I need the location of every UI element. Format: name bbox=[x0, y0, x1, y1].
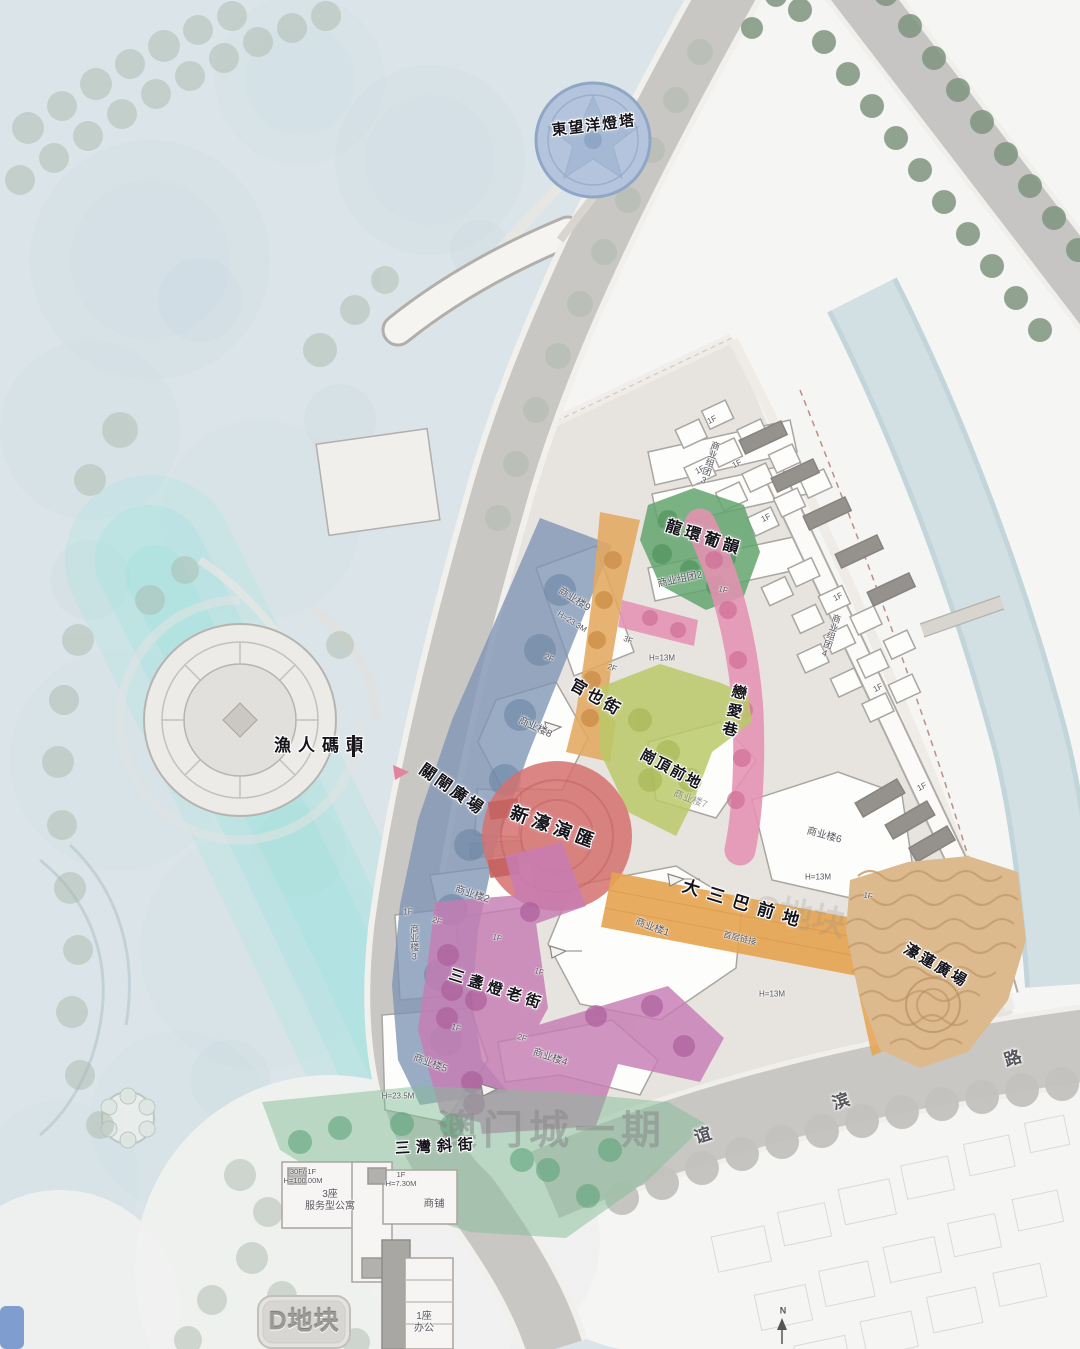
label-building-3: 商业楼3 bbox=[409, 925, 420, 962]
floor-label: 1F bbox=[533, 966, 544, 978]
label-d-plot: D地块 bbox=[268, 1307, 339, 1337]
label-guia-lighthouse: 東望洋燈塔 bbox=[551, 112, 638, 140]
labels-layer: C地块 澳门城一期 東望洋燈塔 漁人碼頭 關閘廣場 新濠演匯 官也街 龍環葡韻 … bbox=[0, 0, 1080, 1349]
label-building-8: 商业楼8 bbox=[516, 715, 553, 741]
label-building-7: 商业楼7 bbox=[671, 788, 708, 811]
floor-label: 1F bbox=[450, 1022, 462, 1034]
floor-label: 1F bbox=[403, 907, 412, 916]
label-building-6: 商业楼6 bbox=[805, 826, 842, 847]
label-border-gate: 關閘廣場 bbox=[415, 760, 488, 819]
site-plan-map: C地块 澳门城一期 東望洋燈塔 漁人碼頭 關閘廣場 新濠演匯 官也街 龍環葡韻 … bbox=[0, 0, 1080, 1349]
label-building-4: 商业楼4 bbox=[531, 1047, 568, 1069]
height-label: H=23.5M bbox=[382, 1091, 415, 1100]
compass-n-label: N bbox=[780, 1306, 787, 1317]
floor-label: 3F bbox=[622, 634, 634, 646]
floor-label: 2F bbox=[431, 915, 443, 927]
label-cluster-3: 商业组团3 bbox=[697, 439, 721, 486]
height-label: H=23.3M bbox=[556, 609, 589, 634]
height-label: H=13M bbox=[759, 989, 785, 998]
label-tower-1: 1座 办公 bbox=[414, 1311, 434, 1335]
label-building-9: 商业楼9 bbox=[556, 586, 592, 615]
label-divider-bar bbox=[352, 735, 355, 757]
label-xinhao-yanhui: 新濠演匯 bbox=[507, 802, 601, 853]
label-cluster-4: 商业组团4 bbox=[818, 612, 842, 659]
floor-label: 2F bbox=[606, 662, 618, 674]
project-watermark: 澳门城一期 bbox=[437, 1107, 667, 1154]
height-label: H=13M bbox=[649, 653, 675, 662]
label-cluster-2: 商业组团2 bbox=[656, 569, 703, 590]
label-taipa-houses: 龍環葡韻 bbox=[663, 517, 745, 560]
label-gangding-square: 崗頂前地 bbox=[637, 746, 705, 794]
label-sanwan-street: 三灣斜街 bbox=[395, 1136, 480, 1158]
label-love-lane: 戀愛巷 bbox=[718, 682, 749, 742]
label-rua-do-cunha: 官也街 bbox=[567, 676, 626, 721]
label-building-2: 商业楼2 bbox=[453, 884, 490, 906]
floor-label: 1F bbox=[872, 682, 885, 695]
floor-label: 1F bbox=[832, 591, 845, 604]
label-tower-3-spec: 30F/-1F H=100.00M bbox=[284, 1168, 323, 1186]
label-haolian-plaza: 濠蓮廣場 bbox=[900, 940, 971, 991]
label-shops: 商铺 bbox=[423, 1197, 445, 1210]
floor-label: 1F bbox=[491, 932, 502, 944]
height-label: H=13M bbox=[805, 872, 831, 881]
label-tower-3: 3座 服务型公寓 bbox=[305, 1189, 355, 1213]
floor-label: 2F bbox=[516, 1032, 528, 1044]
plot-c-watermark: C地块 bbox=[751, 887, 850, 945]
floor-label: 1F bbox=[731, 458, 744, 471]
road-char-1: 谊 bbox=[692, 1124, 714, 1148]
label-three-lamps: 三盞燈老街 bbox=[447, 966, 548, 1014]
floor-label: 1F bbox=[706, 414, 719, 427]
floor-label: 1F bbox=[862, 890, 873, 901]
label-building-5: 商业楼5 bbox=[411, 1052, 448, 1075]
road-char-2: 滨 bbox=[830, 1090, 852, 1114]
label-link-note: 首层链接 bbox=[722, 929, 757, 947]
road-char-3: 路 bbox=[1002, 1047, 1024, 1071]
label-shops-spec: 1F H=7.30M bbox=[386, 1171, 417, 1189]
floor-label: 1F bbox=[717, 584, 728, 596]
label-dasanba-square: 大三巴前地 bbox=[680, 876, 810, 933]
label-fishermans-wharf: 漁人碼頭 bbox=[274, 736, 370, 756]
floor-label: 1F bbox=[760, 512, 773, 525]
floor-label: 1F bbox=[916, 781, 929, 794]
floor-label: 1F bbox=[694, 464, 707, 477]
floor-label: 2F bbox=[543, 652, 555, 665]
label-building-1: 商业楼1 bbox=[633, 916, 670, 939]
